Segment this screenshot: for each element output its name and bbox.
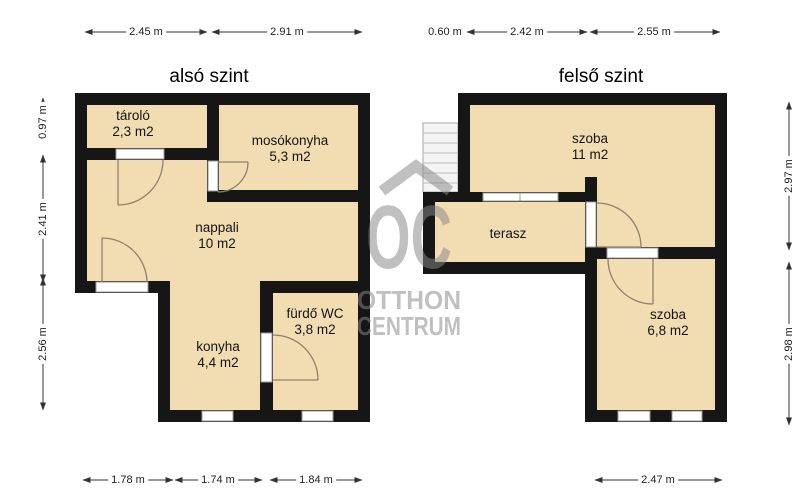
room-name: nappali	[195, 220, 239, 236]
watermark-line2: CENTRUM	[357, 311, 461, 341]
room-name: konyha	[196, 339, 240, 355]
dim-left-3: 2.56 m	[37, 324, 49, 364]
upper-floor-title: felső szint	[559, 66, 643, 88]
dim-bottom-4: 2.47 m	[638, 474, 678, 486]
dim-top-1: 2.45 m	[126, 26, 166, 38]
floorplan-canvas: OC OTTHON CENTRUM alsó szint felső sz	[0, 0, 807, 500]
watermark-monogram: OC	[366, 188, 452, 288]
floorplan-graphics: OC OTTHON CENTRUM	[0, 0, 807, 500]
room-label-mosokonyha: mosókonyha 5,3 m2	[252, 133, 329, 165]
dim-bottom-2: 1.74 m	[198, 474, 238, 486]
dim-bottom-3: 1.84 m	[296, 474, 336, 486]
room-area: 2,3 m2	[112, 124, 153, 140]
room-label-tarolo: tároló 2,3 m2	[112, 108, 153, 140]
dim-top-4: 2.42 m	[507, 26, 547, 38]
room-name: tároló	[112, 108, 153, 124]
room-area: 11 m2	[572, 147, 609, 163]
room-name: mosókonyha	[252, 133, 329, 149]
room-label-szoba-11: szoba 11 m2	[572, 131, 609, 163]
room-area: 4,4 m2	[196, 355, 240, 371]
room-name: szoba	[572, 131, 609, 147]
room-label-terasz: terasz	[490, 226, 527, 242]
dim-top-2: 2.91 m	[267, 26, 307, 38]
room-label-nappali: nappali 10 m2	[195, 220, 239, 252]
dim-top-5: 2.55 m	[634, 26, 674, 38]
room-name: szoba	[647, 307, 688, 323]
watermark-logo: OC OTTHON CENTRUM	[357, 166, 461, 341]
dim-right-1: 2.97 m	[783, 156, 795, 196]
lower-floor-title: alsó szint	[169, 66, 248, 88]
room-name: fürdő WC	[286, 306, 343, 322]
dim-right-2: 2.98 m	[783, 324, 795, 364]
room-name: terasz	[490, 226, 527, 242]
dim-left-2: 2.41 m	[37, 199, 49, 239]
room-area: 10 m2	[195, 236, 239, 252]
dim-bottom-1: 1.78 m	[108, 474, 148, 486]
room-area: 6,8 m2	[647, 323, 688, 339]
dim-left-1: 0.97 m	[37, 102, 49, 142]
room-label-szoba-68: szoba 6,8 m2	[647, 307, 688, 339]
room-area: 5,3 m2	[252, 149, 329, 165]
room-label-furdo-wc: fürdő WC 3,8 m2	[286, 306, 343, 338]
dim-top-3: 0.60 m	[425, 26, 465, 38]
room-area: 3,8 m2	[286, 322, 343, 338]
room-label-konyha: konyha 4,4 m2	[196, 339, 240, 371]
